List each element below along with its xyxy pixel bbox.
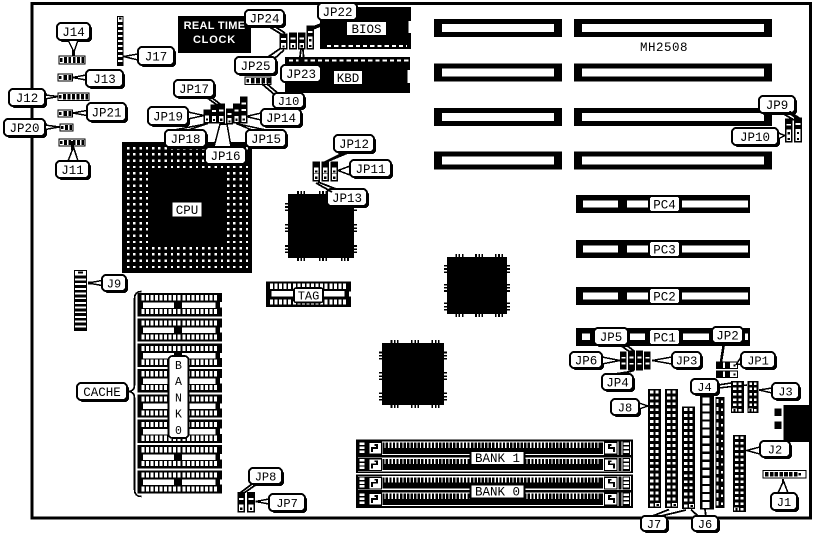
svg-text:PC2: PC2 — [653, 290, 676, 304]
svg-text:J2: J2 — [768, 443, 782, 457]
svg-text:JP3: JP3 — [676, 354, 698, 368]
svg-text:J11: J11 — [61, 164, 84, 178]
svg-text:JP11: JP11 — [355, 163, 385, 177]
svg-text:0: 0 — [175, 425, 182, 438]
svg-text:JP7: JP7 — [276, 497, 298, 511]
svg-text:J9: J9 — [107, 277, 121, 291]
svg-text:A: A — [175, 376, 182, 389]
svg-text:PC1: PC1 — [653, 331, 676, 345]
svg-text:KBD: KBD — [337, 72, 360, 86]
svg-text:MH2508: MH2508 — [640, 41, 688, 55]
svg-text:JP10: JP10 — [740, 131, 770, 145]
svg-text:TAG: TAG — [298, 290, 320, 304]
svg-text:JP23: JP23 — [286, 68, 316, 82]
svg-text:J10: J10 — [278, 95, 300, 109]
svg-text:JP8: JP8 — [255, 470, 277, 484]
svg-text:BANK 1: BANK 1 — [475, 452, 520, 466]
svg-text:JP5: JP5 — [600, 331, 623, 345]
svg-text:JP15: JP15 — [251, 133, 281, 147]
svg-text:JP20: JP20 — [9, 122, 39, 136]
svg-text:J8: J8 — [618, 401, 632, 415]
svg-text:JP2: JP2 — [716, 329, 739, 343]
svg-text:J4: J4 — [697, 381, 711, 395]
svg-text:REAL TIME: REAL TIME — [184, 20, 246, 32]
svg-text:J6: J6 — [698, 518, 712, 532]
svg-text:PC4: PC4 — [653, 198, 676, 212]
svg-text:J12: J12 — [16, 92, 39, 106]
svg-text:JP21: JP21 — [91, 106, 121, 120]
svg-text:J17: J17 — [145, 50, 168, 64]
svg-text:JP14: JP14 — [266, 112, 296, 126]
svg-text:JP4: JP4 — [606, 376, 629, 390]
svg-text:CLOCK: CLOCK — [193, 34, 236, 46]
svg-text:N: N — [175, 392, 182, 405]
svg-text:JP13: JP13 — [332, 192, 362, 206]
svg-text:J14: J14 — [62, 26, 85, 40]
svg-text:JP17: JP17 — [179, 83, 209, 97]
svg-text:JP18: JP18 — [170, 133, 200, 147]
svg-text:CPU: CPU — [176, 204, 199, 218]
svg-text:CACHE: CACHE — [83, 386, 121, 400]
svg-text:J3: J3 — [778, 385, 792, 399]
svg-text:JP22: JP22 — [322, 6, 352, 20]
svg-text:JP1: JP1 — [747, 354, 769, 368]
svg-text:JP24: JP24 — [249, 12, 279, 26]
svg-text:JP9: JP9 — [766, 99, 789, 113]
svg-text:PC3: PC3 — [653, 243, 676, 257]
svg-text:J1: J1 — [777, 496, 791, 510]
svg-text:BANK 0: BANK 0 — [475, 486, 520, 500]
svg-text:B: B — [175, 360, 182, 373]
svg-text:J13: J13 — [93, 73, 116, 87]
svg-text:JP6: JP6 — [575, 354, 598, 368]
svg-text:K: K — [175, 409, 182, 422]
svg-text:JP25: JP25 — [240, 60, 270, 74]
svg-text:J7: J7 — [647, 518, 661, 532]
svg-text:JP12: JP12 — [339, 138, 369, 152]
svg-text:JP19: JP19 — [153, 110, 183, 124]
svg-text:BIOS: BIOS — [351, 23, 381, 37]
svg-text:JP16: JP16 — [210, 150, 240, 164]
